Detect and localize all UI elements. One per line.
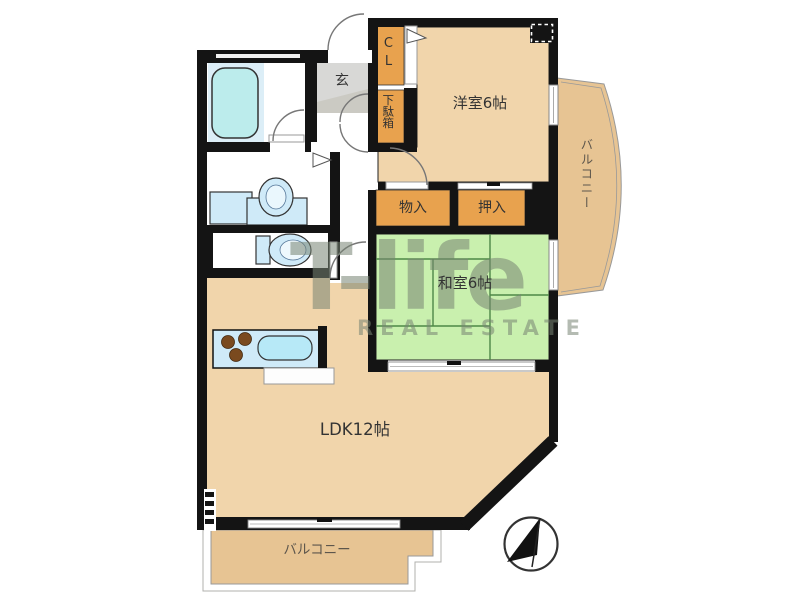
- balcony-bottom-label: バルコニー: [267, 543, 367, 559]
- washing-machine-pan-icon: [210, 192, 252, 224]
- toilet-icon: [256, 234, 311, 266]
- futon-closet-label: 押入: [458, 200, 526, 216]
- counter-ledge: [264, 368, 334, 384]
- japanese-room-label: 和室6帖: [410, 275, 520, 292]
- entrance-label: 玄: [329, 73, 355, 89]
- wall-vent-dashes: [204, 489, 216, 531]
- sink-icon: [258, 336, 312, 360]
- entrance-door-arc: [328, 14, 364, 50]
- genkan-door-arc-2: [340, 124, 368, 152]
- bathroom-door-leaf: [269, 135, 304, 142]
- balcony-right-label: バルコニー: [578, 138, 592, 211]
- western-door-leaf: [386, 182, 428, 189]
- shoe-cabinet-label: 下駄箱: [381, 94, 394, 129]
- floor-plan-drawing: [0, 0, 800, 600]
- storage-label: 物入: [378, 200, 448, 216]
- washbasin-icon: [247, 178, 307, 225]
- ldk-label: LDK12帖: [295, 421, 415, 440]
- washroom-door-flag: [313, 153, 331, 167]
- japanese-room-floor: [376, 234, 549, 360]
- closet-label: CL: [380, 36, 395, 72]
- compass-icon: [505, 518, 558, 571]
- pillar-icon: [530, 23, 554, 43]
- floor-plan: T-life REAL ESTATE 玄 CL 下駄箱 洋室6帖 物入 押入 和…: [0, 0, 800, 600]
- bathtub-icon: [212, 68, 258, 138]
- western-room-label: 洋室6帖: [425, 95, 535, 112]
